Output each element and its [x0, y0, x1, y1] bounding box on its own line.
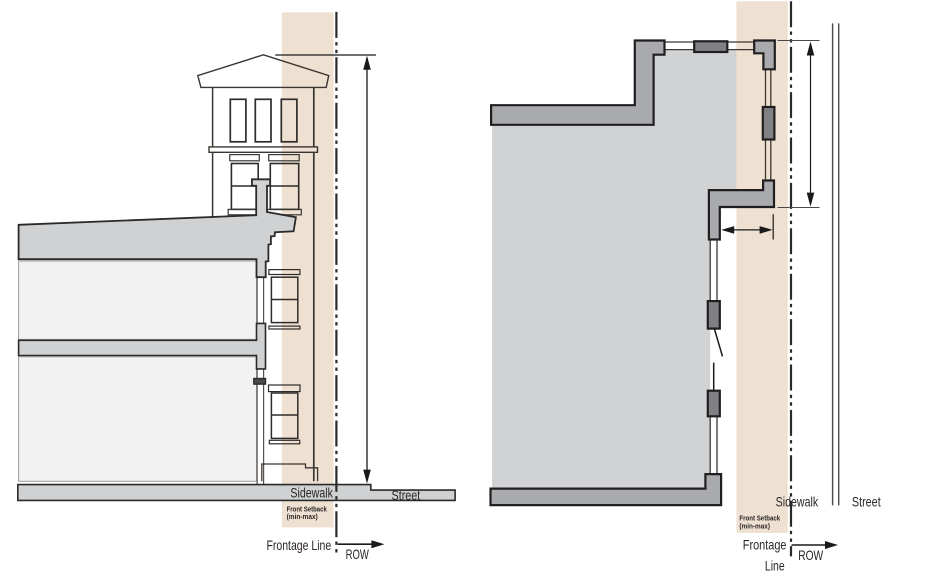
svg-text:(min-max): (min-max): [287, 512, 319, 521]
svg-text:Sidewalk: Sidewalk: [776, 494, 819, 510]
svg-text:(min-max): (min-max): [739, 521, 770, 530]
svg-text:Street: Street: [852, 494, 881, 510]
svg-text:Frontage Line: Frontage Line: [267, 537, 332, 553]
svg-text:Street: Street: [392, 487, 421, 503]
svg-text:Sidewalk: Sidewalk: [290, 484, 333, 500]
svg-text:Frontage: Frontage: [743, 537, 787, 553]
svg-text:Line: Line: [765, 557, 785, 573]
svg-text:ROW: ROW: [798, 547, 824, 563]
svg-text:ROW: ROW: [346, 546, 370, 562]
